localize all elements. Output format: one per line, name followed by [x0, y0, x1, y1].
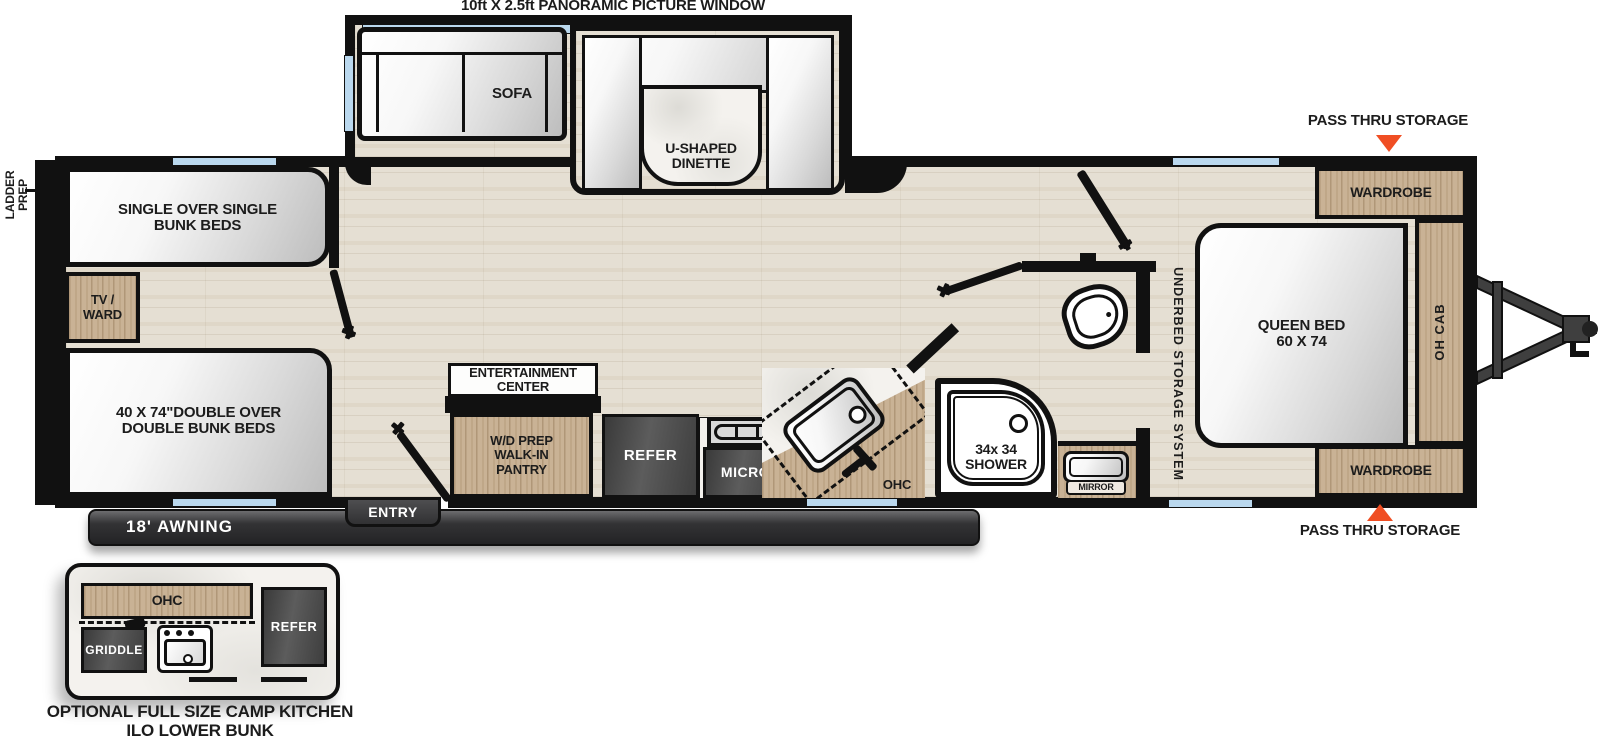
window-kitchen-bottom	[806, 498, 898, 507]
walkin-pantry: W/D PREP WALK-IN PANTRY	[450, 413, 593, 498]
ladder-prep-pointer	[25, 189, 59, 192]
pass-thru-top-label: PASS THRU STORAGE	[1238, 113, 1538, 129]
queen-bed: QUEEN BED 60 X 74	[1195, 223, 1408, 448]
slideout-window-left	[344, 55, 354, 132]
ladder-prep-label: LADDER PREP	[4, 155, 30, 235]
tv-ward-cabinet: TV / WARD	[65, 272, 140, 343]
refrigerator: REFER	[602, 414, 699, 498]
wardrobe-bottom-label: WARDROBE	[1350, 463, 1432, 478]
inset-refer: REFER	[261, 587, 327, 667]
wardrobe-top-label: WARDROBE	[1350, 185, 1432, 200]
single-bunk-label: SINGLE OVER SINGLE BUNK BEDS	[70, 202, 325, 234]
window-bedroom-top	[1172, 157, 1280, 166]
dinette-bench-right	[766, 35, 834, 191]
double-bunk-beds: 40 X 74"DOUBLE OVER DOUBLE BUNK BEDS	[65, 348, 332, 497]
bath-right-wall-lower	[1136, 428, 1150, 508]
mirror-label-box: MIRROR	[1066, 480, 1126, 495]
dinette-bench-left	[582, 35, 642, 191]
shower-drain-icon	[1009, 414, 1028, 433]
double-bunk-label: 40 X 74"DOUBLE OVER DOUBLE BUNK BEDS	[70, 405, 327, 437]
window-bunk-bottom	[172, 498, 277, 507]
bunk-partition-wall	[329, 156, 339, 268]
inset-griddle: GRIDDLE	[81, 627, 147, 673]
pass-thru-bottom-label: PASS THRU STORAGE	[1230, 523, 1530, 539]
pantry-label: W/D PREP WALK-IN PANTRY	[490, 434, 553, 476]
inset-ohc: OHC	[81, 583, 253, 619]
inset-range	[157, 625, 213, 673]
window-bedroom-bottom	[1168, 499, 1253, 508]
awning-label: 18' AWNING	[126, 518, 233, 536]
awning-bar: 18' AWNING	[88, 509, 980, 546]
bath-right-wall-upper	[1136, 261, 1150, 353]
tv-ward-label: TV / WARD	[83, 293, 122, 321]
dinette-unit: U-SHAPED DINETTE	[570, 25, 845, 195]
inset-refer-label: REFER	[271, 620, 318, 634]
floorplan-diagram: 10ft X 2.5ft PANORAMIC PICTURE WINDOW SO…	[0, 0, 1600, 741]
queen-bed-label: QUEEN BED 60 X 74	[1200, 318, 1403, 350]
entry-label: ENTRY	[368, 505, 417, 520]
ohc-label: OHC	[875, 478, 919, 492]
bumper-clip-top	[50, 196, 64, 208]
wall-right	[1466, 156, 1477, 508]
single-bunk-beds: SINGLE OVER SINGLE BUNK BEDS	[65, 167, 330, 267]
inset-griddle-label: GRIDDLE	[85, 644, 143, 657]
sofa-label: SOFA	[470, 86, 554, 102]
trailer-hitch	[1477, 268, 1599, 392]
underbed-storage-label: UNDERBED STORAGE SYSTEM	[1164, 249, 1184, 499]
mirror-vanity: MIRROR	[1058, 441, 1136, 498]
pass-thru-top-arrow	[1376, 135, 1402, 152]
wall-bottom-right	[448, 497, 1477, 508]
dinette-table: U-SHAPED DINETTE	[640, 85, 762, 186]
mirror-label: MIRROR	[1078, 483, 1113, 493]
camp-kitchen-inset: OHC GRIDDLE REFER	[65, 563, 340, 700]
wall-top-right	[845, 156, 1477, 167]
bumper-clip-bottom	[50, 452, 64, 464]
wardrobe-bottom: WARDROBE	[1315, 445, 1467, 497]
entertainment-center-label: ENTERTAINMENT CENTER	[469, 366, 577, 394]
panoramic-window-label: 10ft X 2.5ft PANORAMIC PICTURE WINDOW	[393, 0, 833, 14]
refer-label: REFER	[624, 448, 677, 464]
bath-wall-bump	[1080, 253, 1096, 262]
window-bunk-top	[172, 157, 277, 166]
sofa: SOFA	[357, 27, 567, 141]
entertainment-center: ENTERTAINMENT CENTER	[448, 363, 598, 397]
inset-handle-2	[261, 677, 307, 682]
pass-thru-bottom-arrow	[1367, 504, 1393, 521]
camp-kitchen-caption: OPTIONAL FULL SIZE CAMP KITCHEN ILO LOWE…	[30, 702, 370, 740]
oh-cab-label: OH CAB	[1433, 232, 1449, 432]
inset-handle-1	[189, 677, 237, 682]
kitchen-counter: OHC	[762, 368, 925, 498]
inset-counter-dash	[79, 621, 255, 624]
wardrobe-top: WARDROBE	[1315, 167, 1467, 219]
shower-label: 34x 34 SHOWER	[941, 442, 1051, 472]
entry-tab: ENTRY	[345, 497, 441, 527]
entertainment-center-base	[445, 396, 601, 413]
dinette-label: U-SHAPED DINETTE	[644, 141, 758, 171]
inset-ohc-label: OHC	[152, 593, 183, 608]
